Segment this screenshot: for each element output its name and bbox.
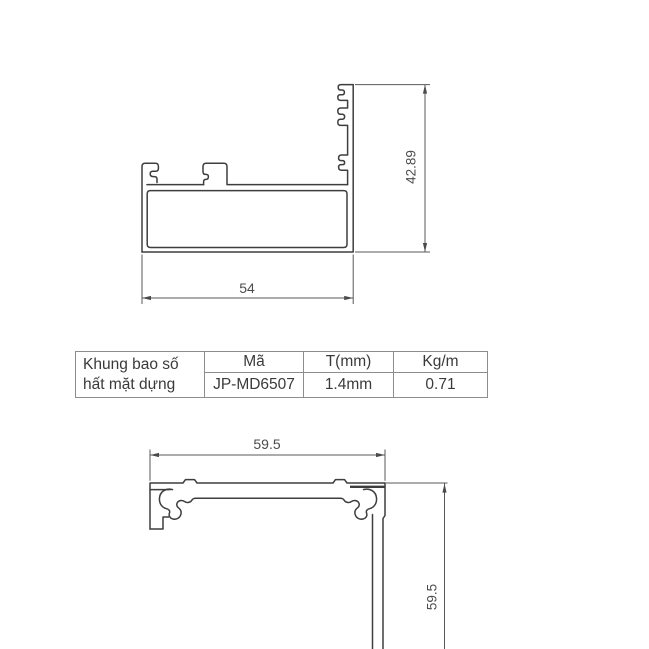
bottom-profile-top-surface [150,480,385,529]
bottom-width-dimension [150,450,385,481]
spec-header-thickness: T(mm) [304,352,393,373]
bottom-height-dimension [385,483,448,649]
spec-product-name-cell: Khung bao số hất mặt dựng [76,352,205,397]
top-profile-inner-chamber [147,191,347,248]
spec-value-weight: 0.71 [394,373,487,397]
spec-value-code: JP-MD6507 [205,373,303,397]
bottom-profile-leg-outer [383,483,385,649]
top-profile-middle-hook [203,163,348,184]
spec-header-code: Mã [205,352,303,373]
top-profile-drawing [142,85,430,304]
top-profile-right-bottom [142,85,353,252]
spec-col-thickness: T(mm) 1.4mm [304,352,394,397]
bottom-profile-drawing [150,450,448,649]
top-height-dimension [355,85,430,252]
product-name-line2: hất mặt dựng [83,375,204,395]
top-width-dim-label: 54 [239,280,255,296]
bottom-height-dim-label: 59.5 [425,584,440,610]
bottom-profile-left-curl [159,489,195,519]
spec-table: Khung bao số hất mặt dựng Mã JP-MD6507 T… [75,351,488,398]
bottom-profile-left-foot [150,517,169,529]
spec-header-weight: Kg/m [394,352,487,373]
spec-col-code: Mã JP-MD6507 [205,352,304,397]
bottom-width-dim-label: 59.5 [253,436,280,452]
top-profile-left-wall-hook [142,163,158,252]
spec-value-thickness: 1.4mm [304,373,393,397]
top-height-dim-label: 42.89 [404,150,419,184]
technical-drawing-svg [0,0,649,649]
drawing-sheet: 54 42.89 59.5 59.5 Khung bao số hất mặt … [0,0,649,649]
spec-col-weight: Kg/m 0.71 [394,352,487,397]
product-name-line1: Khung bao số [83,355,204,375]
bottom-profile-right-curl [340,489,376,519]
top-profile-fin-hooks [338,85,353,185]
